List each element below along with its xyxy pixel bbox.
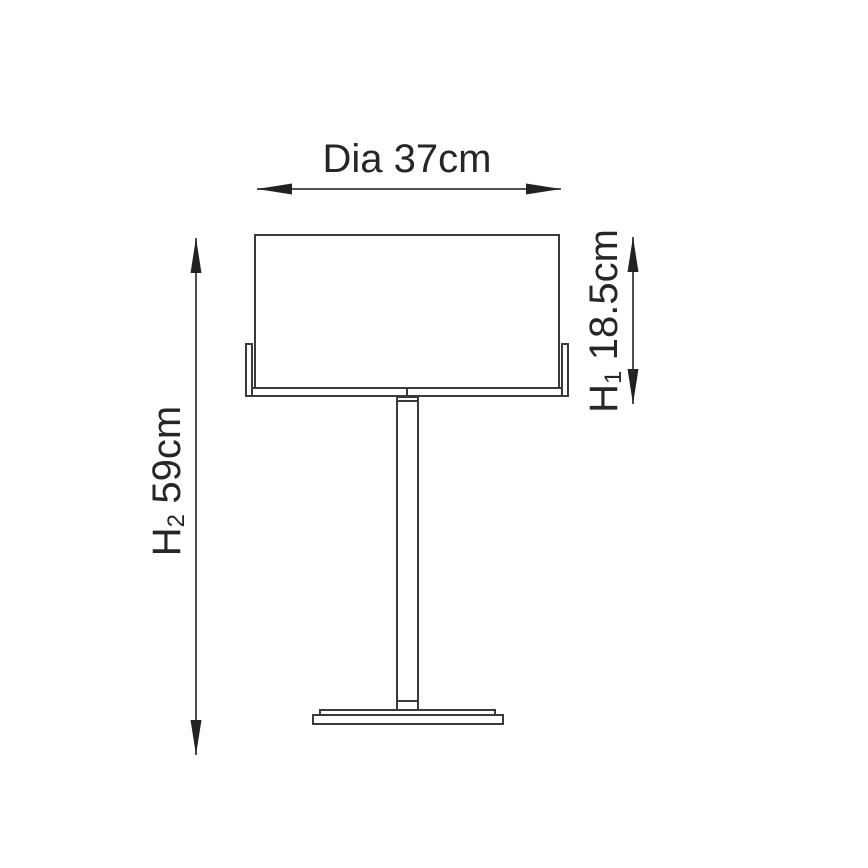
dimension-symbol: H [145, 527, 189, 556]
diameter-dimension-arrow [257, 184, 561, 195]
overall-height-dimension-arrow [191, 238, 202, 755]
dimension-label-overall-height: H259cm [145, 406, 189, 556]
arrowhead-down-icon [191, 720, 202, 755]
lamp-shade [254, 234, 560, 389]
stem-bottom-joint [396, 700, 419, 702]
dimension-value: 59cm [145, 406, 189, 504]
shade-bracket-right [561, 343, 569, 397]
shade-height-dimension-arrow [628, 237, 639, 404]
dimension-label-shade-height: H118.5cm [582, 229, 626, 413]
lamp-base-top [319, 709, 496, 716]
arrowhead-up-icon [191, 238, 202, 273]
arrowhead-left-icon [257, 184, 292, 195]
dimension-subscript: 1 [600, 371, 627, 384]
stem-top-joint [396, 400, 419, 402]
dimension-subscript: 2 [163, 514, 190, 527]
arrowhead-right-icon [526, 184, 561, 195]
arrowhead-up-icon [628, 237, 639, 272]
arrowhead-down-icon [628, 369, 639, 404]
shade-bracket-left [245, 343, 253, 397]
lamp-dimension-diagram: Dia 37cm H259cm H118.5cm [0, 0, 868, 868]
dimension-arrows [0, 0, 868, 868]
dimension-symbol: H [582, 384, 626, 413]
lamp-stem [396, 396, 419, 711]
dimension-label-diameter: Dia 37cm [254, 137, 560, 181]
dimension-value: 18.5cm [582, 229, 626, 360]
